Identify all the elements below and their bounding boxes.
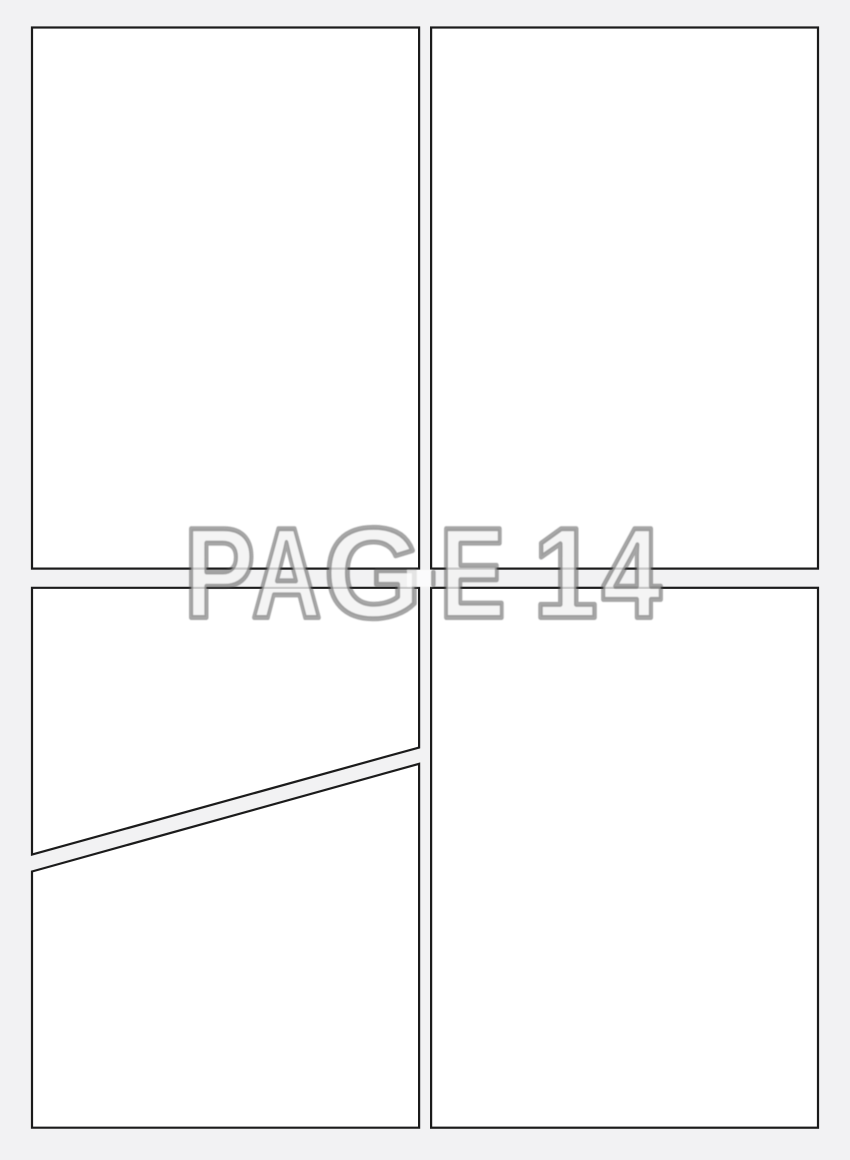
svg-text:A: A [252,502,322,646]
svg-text:1: 1 [533,502,598,646]
svg-text:4: 4 [602,501,662,645]
svg-text:P: P [184,502,255,646]
svg-text:E: E [439,502,505,645]
